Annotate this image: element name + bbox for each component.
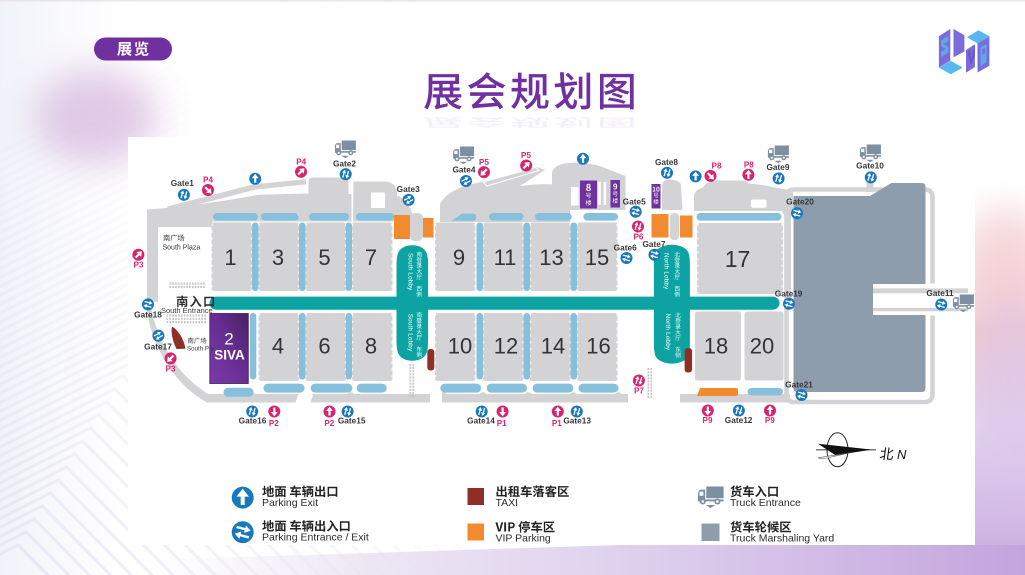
svg-text:Gate12: Gate12 [725,415,753,425]
svg-text:7: 7 [365,245,377,270]
svg-text:11: 11 [494,245,517,270]
svg-text:P9: P9 [765,416,775,425]
svg-text:20: 20 [750,334,774,359]
svg-text:Gate19: Gate19 [775,288,803,298]
svg-text:P9: P9 [703,416,713,425]
svg-text:Gate18: Gate18 [134,309,162,319]
svg-text:Gate4: Gate4 [452,164,475,174]
svg-text:15: 15 [585,245,609,270]
svg-text:P2: P2 [324,419,334,428]
svg-text:Gate13: Gate13 [563,415,591,425]
svg-text:Gate9: Gate9 [766,162,789,172]
svg-text:VIP Parking: VIP Parking [496,532,551,544]
svg-text:N: N [897,447,907,462]
svg-text:Truck Entrance: Truck Entrance [730,497,801,509]
svg-text:P8: P8 [712,162,722,171]
svg-text:17: 17 [725,246,751,272]
svg-text:P3: P3 [134,261,144,270]
svg-text:South Pla: South Pla [187,346,214,353]
svg-text:P5: P5 [521,151,531,160]
svg-text:South Plaza: South Plaza [163,245,201,252]
svg-text:6: 6 [318,334,330,359]
svg-text:P5: P5 [479,158,489,167]
svg-text:1: 1 [224,245,236,270]
svg-text:Gate3: Gate3 [397,184,420,194]
svg-text:South Lobby: South Lobby [406,253,413,291]
svg-text:Gate15: Gate15 [338,415,366,425]
svg-text:P2: P2 [269,419,279,428]
svg-text:P1: P1 [552,419,562,428]
svg-text:Gate2: Gate2 [333,158,356,168]
svg-text:Gate8: Gate8 [655,157,678,167]
svg-text:P4: P4 [296,158,306,167]
svg-text:13: 13 [539,245,563,270]
svg-text:Gate11: Gate11 [926,288,954,298]
svg-text:South Lobby: South Lobby [406,314,413,352]
svg-text:South Entrance: South Entrance [161,306,213,315]
svg-text:Parking Entrance / Exit: Parking Entrance / Exit [262,531,369,543]
svg-text:12: 12 [494,334,518,359]
svg-text:Truck Marshaling Yard: Truck Marshaling Yard [730,532,834,544]
svg-text:North Lobby: North Lobby [664,314,671,351]
svg-text:Gate17: Gate17 [144,341,172,351]
svg-text:3: 3 [272,245,284,270]
svg-text:8: 8 [365,334,377,359]
svg-text:Gate6: Gate6 [614,242,637,252]
svg-text:P1: P1 [497,419,507,428]
svg-text:Gate5: Gate5 [623,197,646,207]
svg-text:Gate7: Gate7 [642,239,665,249]
svg-text:Gate14: Gate14 [467,415,495,425]
svg-text:Parking Exit: Parking Exit [262,497,318,509]
svg-text:Gate21: Gate21 [785,380,813,390]
svg-text:P4: P4 [203,176,213,185]
svg-text:P8: P8 [744,160,754,169]
svg-text:10: 10 [448,334,472,359]
svg-text:TAXI: TAXI [496,497,519,509]
svg-text:4: 4 [272,334,284,359]
svg-text:Gate10: Gate10 [856,161,884,171]
svg-text:18: 18 [704,334,728,359]
svg-text:16: 16 [586,334,610,359]
svg-text:P3: P3 [166,365,176,374]
svg-text:SIVA: SIVA [214,348,245,363]
svg-text:9: 9 [453,245,465,270]
svg-text:Gate1: Gate1 [171,178,194,188]
svg-text:2: 2 [224,330,233,349]
svg-text:P7: P7 [634,387,644,396]
svg-text:North Lobby: North Lobby [662,253,669,290]
svg-text:Gate16: Gate16 [239,415,267,425]
svg-text:Gate20: Gate20 [786,196,814,206]
svg-text:5: 5 [318,245,330,270]
svg-text:14: 14 [541,334,565,359]
